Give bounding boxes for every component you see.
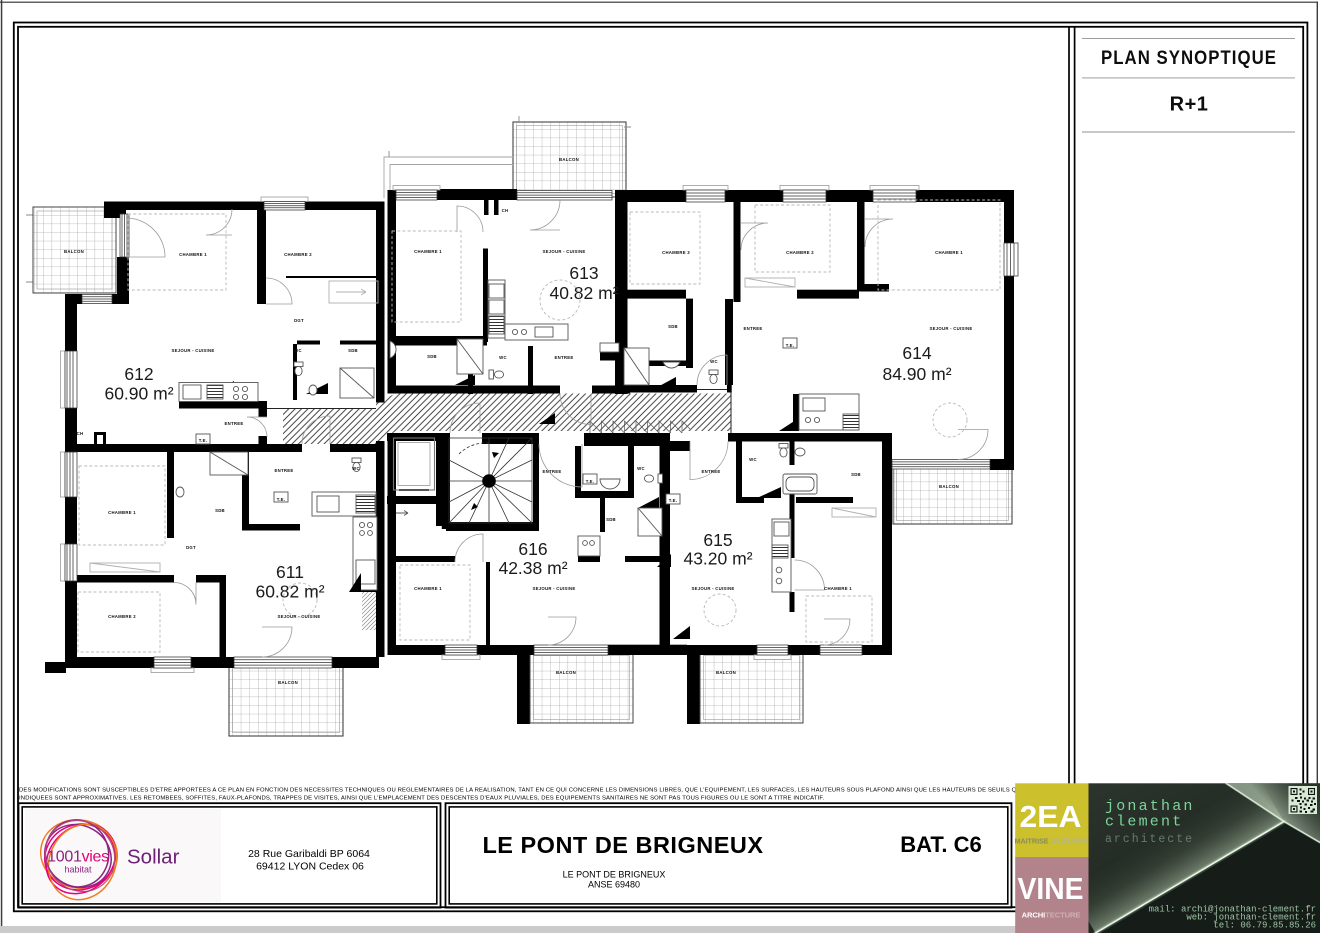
svg-text:INDIQUEES SONT APPROXIMATIVES.: INDIQUEES SONT APPROXIMATIVES. LES RETOM… — [19, 796, 824, 802]
svg-text:60.82 m²: 60.82 m² — [255, 582, 324, 602]
svg-text:2EA: 2EA — [1020, 799, 1082, 834]
svg-text:614: 614 — [902, 343, 931, 363]
svg-text:T.E.: T.E. — [786, 343, 794, 348]
svg-text:T.E.: T.E. — [199, 438, 207, 443]
svg-text:DGT: DGT — [294, 318, 304, 323]
svg-text:BALCON: BALCON — [939, 484, 959, 489]
svg-text:jonathan: jonathan — [1105, 798, 1195, 815]
svg-text:architecte: architecte — [1105, 833, 1194, 846]
svg-text:WC: WC — [637, 466, 645, 471]
svg-text:ENTREE: ENTREE — [702, 469, 721, 474]
svg-text:SEJOUR - CUISINE: SEJOUR - CUISINE — [543, 249, 586, 254]
svg-text:SDB: SDB — [348, 348, 358, 353]
svg-text:CHAMBRE 2: CHAMBRE 2 — [284, 252, 312, 257]
svg-text:VINE: VINE — [1018, 871, 1084, 906]
svg-text:BAT. C6: BAT. C6 — [900, 832, 982, 857]
svg-text:CHAMBRE 1: CHAMBRE 1 — [179, 252, 207, 257]
svg-text:613: 613 — [569, 263, 598, 283]
svg-text:43.20 m²: 43.20 m² — [683, 549, 752, 569]
svg-text:BALCON: BALCON — [64, 249, 84, 254]
svg-text:616: 616 — [518, 539, 547, 559]
svg-text:SDB: SDB — [427, 354, 437, 359]
svg-text:CHAMBRE 1: CHAMBRE 1 — [414, 586, 442, 591]
svg-text:WC: WC — [352, 466, 360, 471]
svg-text:PLAN SYNOPTIQUE: PLAN SYNOPTIQUE — [1101, 47, 1277, 69]
svg-text:LE PONT DE BRIGNEUX: LE PONT DE BRIGNEUX — [482, 832, 763, 858]
svg-text:1001vies: 1001vies — [47, 849, 109, 866]
svg-text:Sollar: Sollar — [127, 846, 180, 869]
svg-text:R+1: R+1 — [1170, 94, 1209, 116]
svg-text:SEJOUR - CUISINE: SEJOUR - CUISINE — [278, 614, 321, 619]
svg-text:CHAMBRE 1: CHAMBRE 1 — [414, 249, 442, 254]
svg-text:SEJOUR - CUISINE: SEJOUR - CUISINE — [533, 586, 576, 591]
svg-text:LE PONT DE BRIGNEUX: LE PONT DE BRIGNEUX — [563, 870, 666, 880]
svg-text:MAITRISE D'OEUVRE: MAITRISE D'OEUVRE — [1014, 837, 1087, 846]
svg-text:SEJOUR - CUISINE: SEJOUR - CUISINE — [692, 586, 735, 591]
svg-text:CH: CH — [77, 431, 84, 436]
svg-text:60.90 m²: 60.90 m² — [104, 384, 173, 404]
svg-text:SEJOUR - CUISINE: SEJOUR - CUISINE — [172, 348, 215, 353]
svg-text:ENTREE: ENTREE — [225, 421, 244, 426]
svg-text:WC: WC — [749, 457, 757, 462]
svg-text:T.E.: T.E. — [669, 498, 677, 503]
svg-text:BALCON: BALCON — [556, 670, 576, 675]
svg-text:ARCHITECTURE: ARCHITECTURE — [1022, 911, 1081, 920]
svg-text:ENTREE: ENTREE — [744, 326, 763, 331]
svg-text:BALCON: BALCON — [278, 680, 298, 685]
svg-text:42.38 m²: 42.38 m² — [498, 558, 567, 578]
svg-text:WC: WC — [499, 355, 507, 360]
svg-text:CHAMBRE 2: CHAMBRE 2 — [786, 250, 814, 255]
svg-text:clement: clement — [1105, 814, 1183, 831]
svg-text:DES MODIFICATIONS SONT SUSCEPT: DES MODIFICATIONS SONT SUSCEPTIBLES D'ET… — [19, 788, 1023, 794]
svg-text:DGT: DGT — [186, 545, 196, 550]
svg-text:CHAMBRE 1: CHAMBRE 1 — [824, 586, 852, 591]
svg-text:BALCON: BALCON — [559, 157, 579, 162]
svg-text:28 Rue Garibaldi BP 6064: 28 Rue Garibaldi BP 6064 — [248, 848, 370, 860]
svg-text:69412 LYON Cedex 06: 69412 LYON Cedex 06 — [256, 861, 364, 873]
svg-text:611: 611 — [276, 562, 304, 582]
svg-text:T.E.: T.E. — [586, 479, 594, 484]
svg-text:CH: CH — [502, 208, 509, 213]
svg-text:CHAMBRE 1: CHAMBRE 1 — [935, 250, 963, 255]
svg-text:SDB: SDB — [606, 517, 616, 522]
svg-text:ENTREE: ENTREE — [555, 355, 574, 360]
svg-text:ANSE 69480: ANSE 69480 — [588, 880, 640, 890]
svg-text:habitat: habitat — [64, 865, 92, 875]
svg-text:SDB: SDB — [215, 508, 225, 513]
svg-text:SDB: SDB — [851, 472, 861, 477]
svg-text:SDB: SDB — [668, 324, 678, 329]
svg-text:WC: WC — [294, 348, 302, 353]
svg-text:CHAMBRE 1: CHAMBRE 1 — [108, 510, 136, 515]
svg-text:ENTREE: ENTREE — [543, 469, 562, 474]
svg-text:SEJOUR - CUISINE: SEJOUR - CUISINE — [930, 326, 973, 331]
svg-text:WC: WC — [710, 359, 718, 364]
svg-text:T.E.: T.E. — [277, 497, 285, 502]
svg-text:84.90 m²: 84.90 m² — [882, 364, 951, 384]
svg-text:615: 615 — [703, 530, 732, 550]
svg-text:BALCON: BALCON — [716, 670, 736, 675]
svg-text:CHAMBRE 3: CHAMBRE 3 — [662, 250, 690, 255]
svg-text:40.82 m²: 40.82 m² — [549, 283, 618, 303]
svg-text:CHAMBRE 2: CHAMBRE 2 — [108, 614, 136, 619]
svg-text:612: 612 — [124, 364, 153, 384]
svg-text:ENTREE: ENTREE — [275, 468, 294, 473]
svg-text:tel: 06.79.85.85.26: tel: 06.79.85.85.26 — [1213, 921, 1316, 931]
